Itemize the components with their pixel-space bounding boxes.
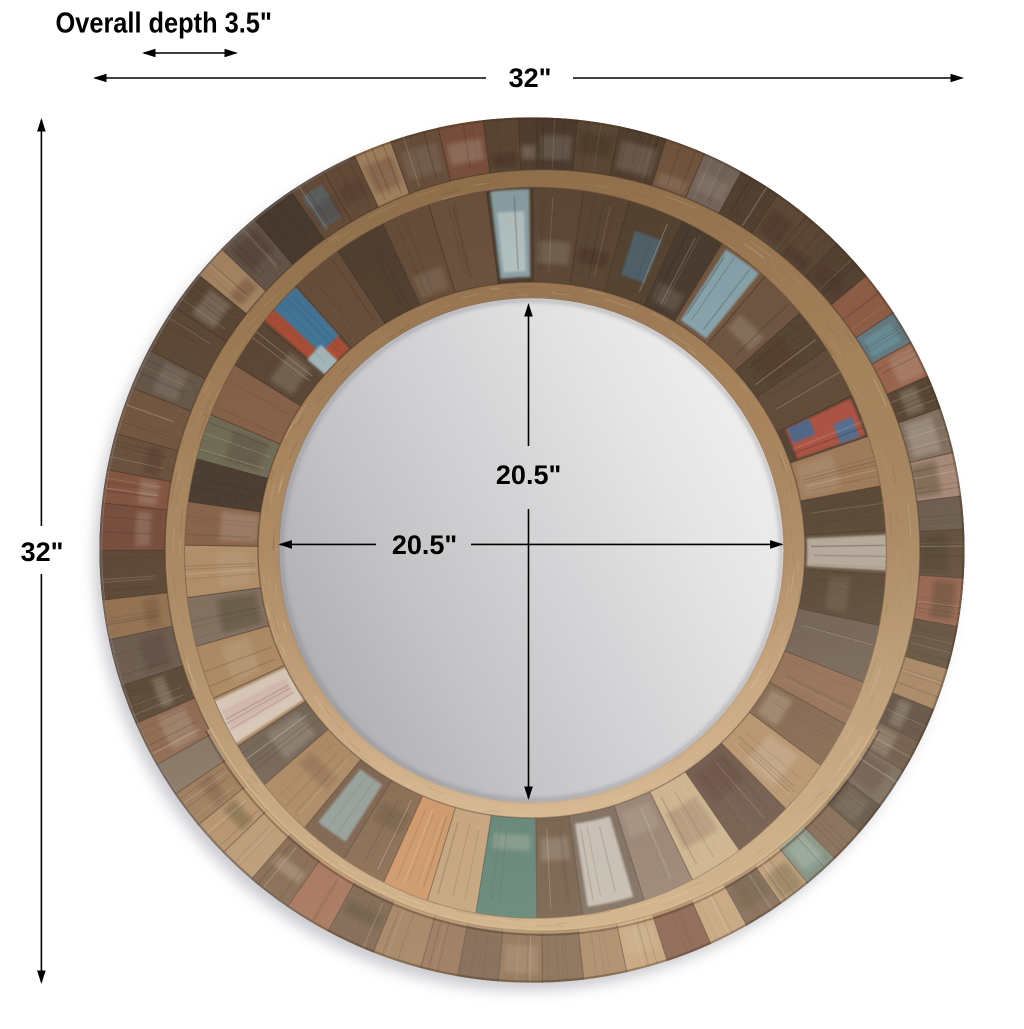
svg-text:20.5": 20.5": [496, 460, 561, 490]
svg-text:20.5": 20.5": [392, 530, 457, 560]
svg-text:32": 32": [509, 63, 552, 93]
svg-text:Overall depth 3.5": Overall depth 3.5": [56, 6, 272, 39]
svg-text:32": 32": [21, 537, 64, 567]
